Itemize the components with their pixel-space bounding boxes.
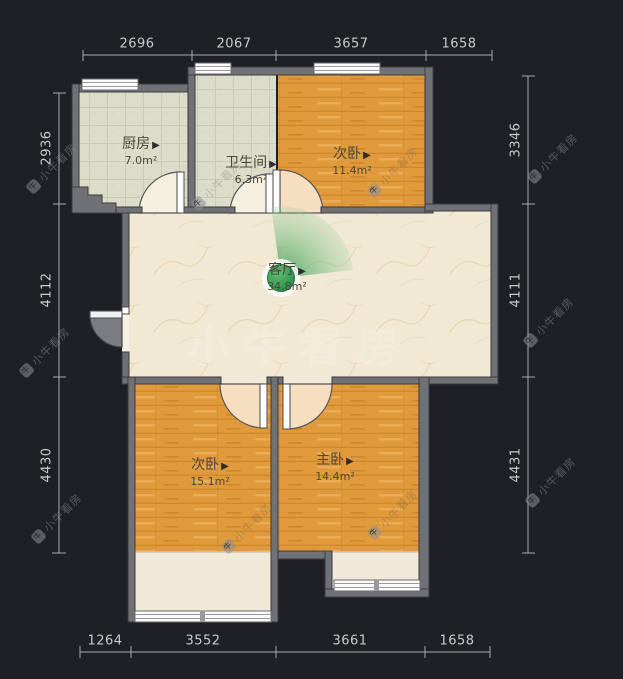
dim-top-2: 2067 [216,37,251,52]
dim-right-3: 4431 [509,447,524,482]
kitchen-door-leaf [177,172,184,213]
entrance-door [90,311,122,347]
room-arrow-icon[interactable]: ▶ [269,159,277,170]
dimension-line-bottom [80,646,490,658]
room-arrow-icon[interactable]: ▶ [363,150,371,161]
dimension-line-top [83,50,492,61]
room-arrow-icon[interactable]: ▶ [221,461,229,472]
floor-plan-viewer: 2696 2067 3657 1658 1264 3552 3661 1658 … [0,0,623,679]
room-label-bedroom-top[interactable]: 次卧▶ 11.4m² [332,143,372,177]
bathroom-window [195,63,231,74]
floor-plan [0,0,623,679]
entrance-door-swing [90,315,122,347]
master-door-leaf [283,384,290,429]
room-label-kitchen[interactable]: 厨房▶ 7.0m² [122,133,160,167]
dim-bottom-4: 1658 [439,634,474,649]
room-label-bathroom[interactable]: 卫生间▶ 6.3m² [225,152,277,186]
dim-right-2: 4111 [509,272,524,307]
dim-bottom-3: 3661 [332,634,367,649]
dim-top-4: 1658 [441,37,476,52]
entrance-door-leaf [90,311,122,318]
room-label-living[interactable]: 客厅▶ 34.8m² [267,259,307,293]
dim-bottom-1: 1264 [87,634,122,649]
bedroom-top-window [314,63,380,74]
bedroom-left-door-leaf [260,384,267,428]
dim-top-1: 2696 [119,37,154,52]
dim-left-2: 4112 [40,272,55,307]
room-label-master[interactable]: 主卧▶ 14.4m² [315,449,355,483]
kitchen-window [82,79,138,90]
room-arrow-icon[interactable]: ▶ [298,266,306,277]
dim-right-1: 3346 [509,122,524,157]
dim-bottom-2: 3552 [185,634,220,649]
room-label-bedroom-left[interactable]: 次卧▶ 15.1m² [190,454,230,488]
dimension-line-right [522,76,535,553]
room-arrow-icon[interactable]: ▶ [152,140,160,151]
dim-left-3: 4430 [40,447,55,482]
dim-left-1: 2936 [40,130,55,165]
dim-top-3: 3657 [333,37,368,52]
room-arrow-icon[interactable]: ▶ [346,456,354,467]
